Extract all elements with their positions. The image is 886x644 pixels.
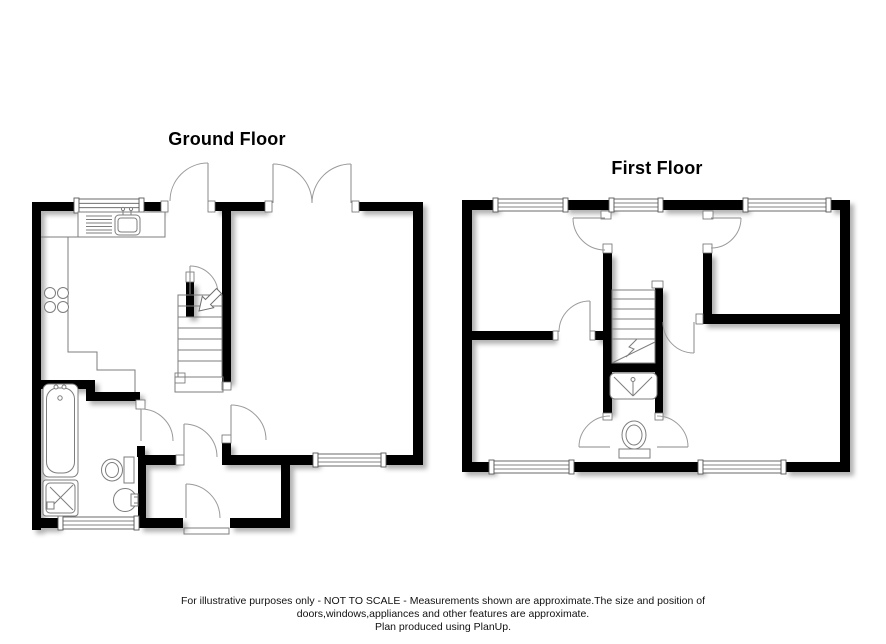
stairs-direction-arrow — [199, 289, 222, 312]
disclaimer-line-2: doors,windows,appliances and other featu… — [0, 608, 886, 621]
rear-door-arc — [184, 484, 229, 534]
front-door-arc — [170, 163, 208, 201]
disclaimer-line-3: Plan produced using PlanUp. — [0, 621, 886, 634]
disclaimer-line-1: For illustrative purposes only - NOT TO … — [0, 595, 886, 608]
wash-basin — [114, 489, 139, 512]
rear-door-threshold — [184, 528, 229, 534]
window — [743, 198, 831, 212]
first-floor-title: First Floor — [537, 158, 777, 179]
window — [58, 516, 139, 530]
window — [609, 198, 663, 212]
floorplan-page: Ground Floor First Floor For illustrativ… — [0, 0, 886, 644]
window — [74, 198, 144, 213]
ground-floor-title: Ground Floor — [107, 129, 347, 150]
kitchen-counter-lines — [41, 237, 135, 392]
first-doors — [559, 218, 741, 447]
bathroom-door-right-arc — [657, 416, 688, 447]
french-doors-arc — [273, 164, 351, 203]
window — [698, 460, 786, 474]
window — [313, 453, 386, 467]
ground-floor-plan — [32, 163, 423, 534]
bathroom-door-left-arc — [579, 416, 610, 447]
hob — [45, 288, 69, 313]
ground-walls — [32, 202, 423, 530]
first-walls — [462, 200, 850, 472]
disclaimer: For illustrative purposes only - NOT TO … — [0, 595, 886, 634]
toilet-first — [619, 421, 650, 458]
lobby-door-arc — [184, 424, 217, 457]
bedroom2-door-arc — [711, 218, 741, 248]
toilet — [102, 457, 135, 483]
ground-doors — [141, 163, 351, 534]
bedroom4-door-arc — [663, 322, 694, 353]
window — [489, 460, 574, 474]
window — [493, 198, 568, 212]
stairs-break-arrow — [626, 339, 637, 357]
bedroom3-door-arc — [559, 301, 590, 332]
first-floor-plan — [462, 198, 850, 474]
shower-tray — [43, 480, 78, 516]
kitchen-sink — [78, 207, 165, 237]
living-room-door-arc — [231, 405, 266, 440]
bathtub — [43, 384, 78, 477]
shower-cubicle — [610, 373, 657, 399]
bathroom-door-arc — [141, 409, 173, 441]
floorplan-drawing — [0, 0, 886, 644]
bedroom1-door-arc — [573, 218, 605, 250]
staircase-first — [612, 290, 655, 363]
